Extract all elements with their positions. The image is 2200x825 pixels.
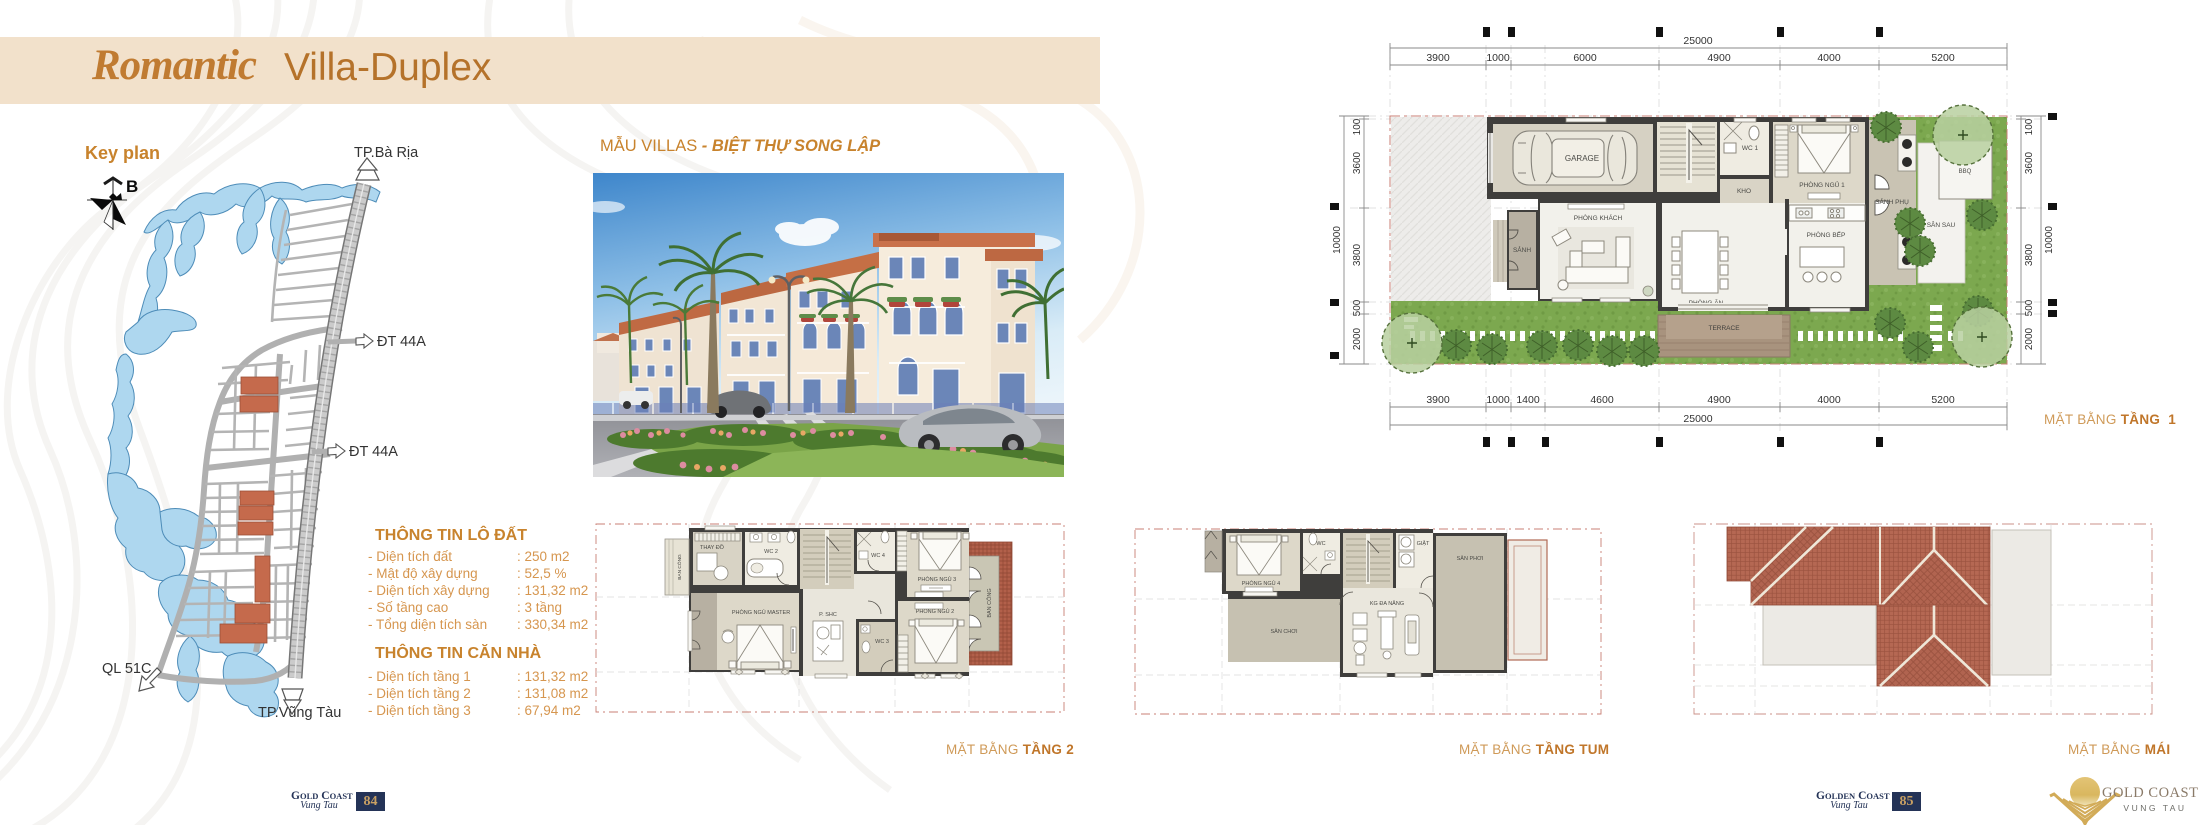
svg-text:SẢNH PHỤ: SẢNH PHỤ <box>1875 197 1909 206</box>
svg-text:WC 3: WC 3 <box>875 639 889 645</box>
svg-text:100: 100 <box>2024 118 2035 135</box>
svg-text:4000: 4000 <box>1817 394 1841 406</box>
svg-text:BAN CÔNG: BAN CÔNG <box>676 554 683 580</box>
svg-text:3900: 3900 <box>1426 52 1450 64</box>
svg-text:TP.Bà Rịa: TP.Bà Rịa <box>354 145 419 161</box>
svg-text:SÂN SAU: SÂN SAU <box>1927 220 1956 229</box>
svg-text:SÂN PHƠI: SÂN PHƠI <box>1457 555 1484 562</box>
svg-text:1400: 1400 <box>1516 394 1540 406</box>
svg-text:PHÒNG KHÁCH: PHÒNG KHÁCH <box>1574 213 1623 222</box>
svg-text:500: 500 <box>1352 299 1363 316</box>
svg-text:500: 500 <box>2024 299 2035 316</box>
svg-text:3800: 3800 <box>2024 243 2035 266</box>
svg-text:SÂN CHƠI: SÂN CHƠI <box>1270 628 1297 635</box>
svg-text:PHÒNG NGỦ 3: PHÒNG NGỦ 3 <box>918 576 957 583</box>
svg-text:4000: 4000 <box>1817 52 1841 64</box>
svg-text:THAY ĐỒ: THAY ĐỒ <box>700 544 725 551</box>
svg-text:3900: 3900 <box>1426 394 1450 406</box>
svg-text:WC 4: WC 4 <box>871 553 885 559</box>
svg-text:KG ĐA NĂNG: KG ĐA NĂNG <box>1370 600 1404 607</box>
svg-text:5200: 5200 <box>1931 52 1955 64</box>
svg-text:B: B <box>126 177 138 196</box>
svg-text:3600: 3600 <box>2024 151 2035 174</box>
svg-text:1000: 1000 <box>1486 52 1510 64</box>
svg-text:KHO: KHO <box>1737 188 1751 195</box>
svg-text:3800: 3800 <box>1352 243 1363 266</box>
svg-text:10000: 10000 <box>1332 226 1343 254</box>
svg-text:WC: WC <box>1316 541 1325 547</box>
svg-text:2000: 2000 <box>2024 327 2035 350</box>
svg-text:VUNG TAU: VUNG TAU <box>2123 803 2186 813</box>
svg-text:TERRACE: TERRACE <box>1708 325 1740 332</box>
svg-text:PHÒNG NGỦ 1: PHÒNG NGỦ 1 <box>1799 180 1845 189</box>
svg-text:GIẶT: GIẶT <box>1417 540 1430 547</box>
svg-text:4900: 4900 <box>1707 394 1731 406</box>
svg-text:BAN CÔNG: BAN CÔNG <box>986 588 993 617</box>
svg-text:6000: 6000 <box>1573 52 1597 64</box>
svg-text:BBQ: BBQ <box>1959 169 1972 175</box>
svg-text:ĐT 44A: ĐT 44A <box>349 444 398 460</box>
svg-text:GARAGE: GARAGE <box>1565 154 1599 163</box>
svg-text:PHÒNG NGỦ 4: PHÒNG NGỦ 4 <box>1242 580 1281 587</box>
svg-text:ĐT 44A: ĐT 44A <box>377 334 426 350</box>
svg-text:2000: 2000 <box>1352 327 1363 350</box>
svg-text:5200: 5200 <box>1931 394 1955 406</box>
svg-text:GOLD COAST: GOLD COAST <box>2102 785 2198 801</box>
svg-text:WC 2: WC 2 <box>764 549 778 555</box>
svg-text:TP.Vũng Tàu: TP.Vũng Tàu <box>258 705 341 721</box>
svg-text:25000: 25000 <box>1683 35 1712 47</box>
svg-text:P. SHC: P. SHC <box>819 612 837 618</box>
svg-text:4600: 4600 <box>1590 394 1614 406</box>
svg-text:3600: 3600 <box>1352 151 1363 174</box>
svg-text:WC 1: WC 1 <box>1742 145 1759 152</box>
svg-text:100: 100 <box>1352 118 1363 135</box>
svg-text:1000: 1000 <box>1486 394 1510 406</box>
svg-text:25000: 25000 <box>1683 413 1712 425</box>
svg-text:4900: 4900 <box>1707 52 1731 64</box>
svg-text:PHÒNG NGỦ MASTER: PHÒNG NGỦ MASTER <box>732 609 790 616</box>
svg-text:10000: 10000 <box>2044 226 2055 254</box>
svg-text:SẢNH: SẢNH <box>1513 245 1531 254</box>
svg-text:QL 51C: QL 51C <box>102 661 151 677</box>
